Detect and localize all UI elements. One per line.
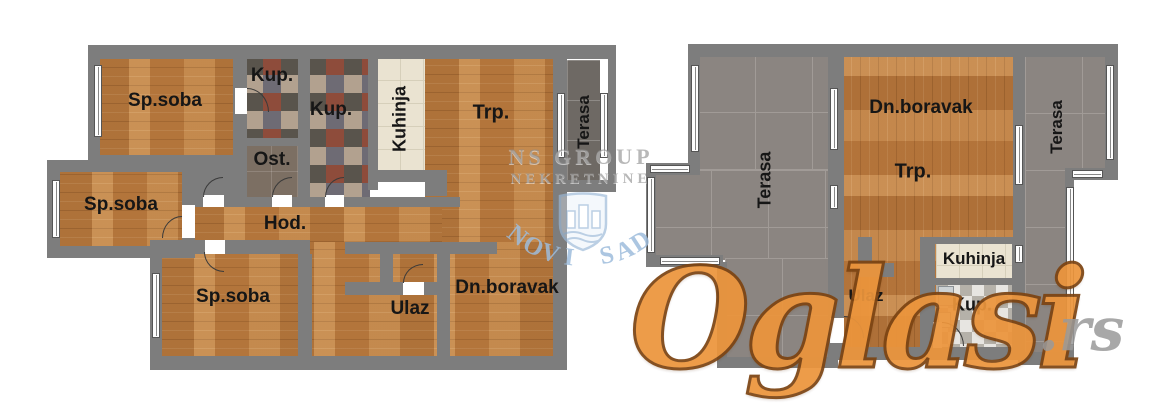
room-label-ulaz-left: Ulaz xyxy=(390,298,429,320)
wall xyxy=(935,278,1015,285)
window xyxy=(1015,125,1023,185)
room-label-sp-soba-3: Sp.soba xyxy=(196,286,270,308)
wall xyxy=(688,44,1118,57)
room-label-hod: Hod. xyxy=(264,213,306,235)
wall xyxy=(368,45,378,190)
window xyxy=(650,165,690,173)
room-trp-left-floor xyxy=(425,57,555,255)
room-label-ulaz-right: Ulaz xyxy=(849,286,884,306)
room-label-dn-boravak-left: Dn.boravak xyxy=(455,277,558,299)
wall xyxy=(378,170,425,182)
room-kup-2-floor xyxy=(308,57,370,197)
wall xyxy=(150,240,310,254)
window xyxy=(830,88,838,150)
window xyxy=(1072,170,1103,178)
room-hod-floor xyxy=(190,205,442,242)
window xyxy=(152,273,160,338)
wall xyxy=(608,45,616,192)
floor-plan-image: Sp.soba Kup. Kup. Ost. Kuhinja Trp. Tera… xyxy=(0,0,1164,420)
room-label-sp-soba-1: Sp.soba xyxy=(128,90,202,112)
room-label-kuhinja-right: Kuhinja xyxy=(943,249,1005,269)
door-opening xyxy=(933,322,942,348)
window xyxy=(600,93,608,158)
room-label-terasa-right-plan-left: Terasa xyxy=(755,152,776,209)
door-opening xyxy=(235,88,247,114)
wall xyxy=(233,138,310,146)
room-label-trp-right: Trp. xyxy=(895,161,932,184)
door-opening xyxy=(182,205,195,238)
room-label-kup-2: Kup. xyxy=(310,99,352,121)
window xyxy=(1015,245,1023,263)
window xyxy=(660,257,720,265)
wall xyxy=(872,263,894,277)
wall xyxy=(717,262,727,367)
wall xyxy=(233,45,247,197)
door-opening xyxy=(830,318,844,343)
room-label-kup-1: Kup. xyxy=(251,65,293,87)
window xyxy=(52,180,60,238)
door-opening xyxy=(403,282,424,295)
wall xyxy=(150,356,567,370)
window xyxy=(1066,187,1074,345)
room-label-kup-right: Kup. xyxy=(952,295,992,316)
window xyxy=(1106,65,1114,160)
window xyxy=(557,93,565,158)
room-label-trp-left: Trp. xyxy=(473,102,510,125)
window xyxy=(830,185,838,209)
room-label-terasa-left-plan: Terasa xyxy=(574,95,594,149)
room-label-dn-boravak-right: Dn.boravak xyxy=(869,97,972,119)
wall xyxy=(298,254,312,356)
wall xyxy=(437,254,450,356)
wall xyxy=(345,282,443,295)
wall xyxy=(235,197,460,207)
room-label-kuhinja-left: Kuhinja xyxy=(390,86,411,152)
wall xyxy=(1018,352,1073,365)
wall xyxy=(425,170,447,196)
wall xyxy=(858,237,872,277)
wall xyxy=(380,242,393,295)
wall xyxy=(88,45,615,59)
window xyxy=(691,65,699,152)
room-label-sp-soba-2: Sp.soba xyxy=(84,194,158,216)
room-terasa-right-plan-b-floor xyxy=(654,170,830,260)
wall xyxy=(920,237,1015,244)
window xyxy=(94,65,102,137)
room-terasa-right-plan-c-floor xyxy=(725,258,830,358)
room-label-ost: Ost. xyxy=(254,149,291,171)
wall xyxy=(298,45,310,197)
wall xyxy=(345,242,497,254)
room-terasa-right-lower-floor xyxy=(1025,170,1066,355)
wall xyxy=(717,357,838,368)
wall xyxy=(88,155,235,172)
room-label-terasa-right-plan-right: Terasa xyxy=(1047,100,1067,154)
